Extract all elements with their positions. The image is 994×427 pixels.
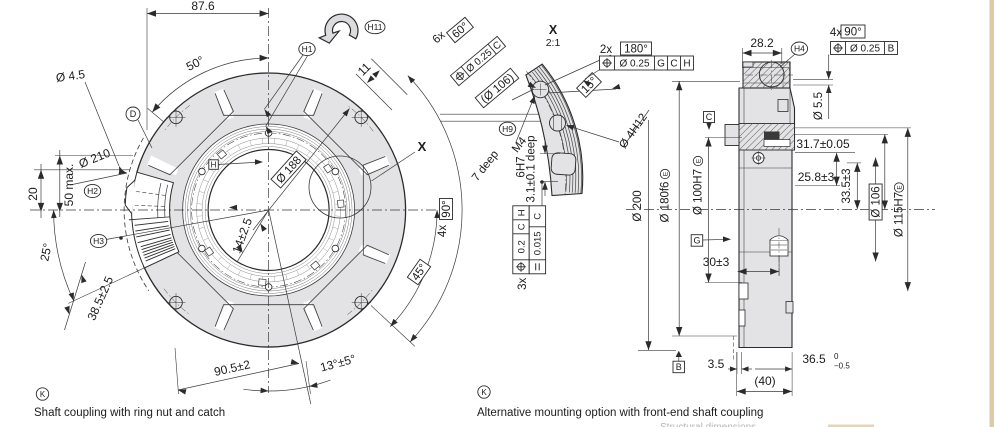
svg-text:Ø 100H7: Ø 100H7 bbox=[693, 169, 705, 215]
svg-text:20: 20 bbox=[26, 187, 40, 201]
svg-text:2:1: 2:1 bbox=[546, 37, 561, 49]
svg-text:Structural dimensions: Structural dimensions bbox=[660, 422, 756, 427]
svg-text:(40): (40) bbox=[754, 374, 775, 388]
svg-text:C: C bbox=[533, 213, 544, 220]
svg-text:G: G bbox=[693, 236, 700, 246]
svg-text:87.6: 87.6 bbox=[191, 0, 215, 13]
svg-text:G: G bbox=[657, 59, 665, 70]
svg-text:36.5: 36.5 bbox=[802, 352, 826, 366]
svg-text:Ø 180f6: Ø 180f6 bbox=[660, 182, 672, 223]
svg-text:0.015: 0.015 bbox=[533, 231, 544, 255]
svg-text:H: H bbox=[516, 209, 527, 216]
svg-text:33.5±3: 33.5±3 bbox=[841, 168, 853, 203]
svg-text:Ø 115H7: Ø 115H7 bbox=[894, 192, 906, 237]
svg-text:31.7±0.05: 31.7±0.05 bbox=[796, 137, 850, 151]
svg-text:2x: 2x bbox=[600, 44, 612, 56]
svg-text:H4: H4 bbox=[794, 44, 805, 54]
svg-text:4x: 4x bbox=[830, 27, 842, 39]
svg-text:−0.5: −0.5 bbox=[834, 362, 850, 371]
svg-text:E: E bbox=[696, 158, 703, 163]
svg-text:K: K bbox=[481, 388, 487, 397]
svg-text:Shaft coupling with ring nut a: Shaft coupling with ring nut and catch bbox=[34, 407, 225, 419]
svg-text:3.1±0.1 deep: 3.1±0.1 deep bbox=[526, 135, 538, 202]
svg-text:4x: 4x bbox=[437, 225, 449, 237]
svg-text:B: B bbox=[888, 44, 895, 55]
svg-text:H3: H3 bbox=[93, 236, 104, 246]
svg-text:H2: H2 bbox=[87, 186, 98, 196]
svg-text:H: H bbox=[683, 59, 690, 70]
svg-text:Alternative mounting option wi: Alternative mounting option with front-e… bbox=[477, 407, 763, 419]
svg-text:H: H bbox=[211, 160, 217, 169]
svg-text:E: E bbox=[663, 171, 670, 176]
svg-text:25.8±3: 25.8±3 bbox=[798, 170, 835, 184]
svg-text:X: X bbox=[418, 139, 427, 154]
svg-text:C: C bbox=[670, 59, 677, 70]
svg-text:Ø 106: Ø 106 bbox=[871, 186, 883, 217]
svg-text:H11: H11 bbox=[368, 22, 383, 32]
svg-text:Ø 200: Ø 200 bbox=[632, 190, 644, 221]
svg-text:B: B bbox=[676, 362, 682, 372]
svg-text:C: C bbox=[516, 223, 527, 230]
svg-text:0.2: 0.2 bbox=[516, 240, 527, 253]
svg-text:28.2: 28.2 bbox=[750, 36, 774, 50]
svg-text:90°: 90° bbox=[844, 27, 861, 39]
svg-text:X: X bbox=[549, 23, 558, 37]
svg-text:C: C bbox=[706, 112, 713, 122]
svg-text:Ø 5.5: Ø 5.5 bbox=[813, 92, 825, 120]
svg-text:30±3: 30±3 bbox=[703, 255, 730, 269]
svg-text:3.5: 3.5 bbox=[708, 357, 725, 371]
svg-text:Ø 0.25: Ø 0.25 bbox=[850, 44, 880, 55]
svg-text:90°: 90° bbox=[441, 200, 453, 217]
svg-text:Ø 0.25: Ø 0.25 bbox=[619, 59, 649, 70]
svg-text:H9: H9 bbox=[502, 124, 513, 134]
svg-text:3x: 3x bbox=[517, 277, 529, 289]
svg-text:D: D bbox=[130, 109, 137, 119]
svg-text:180°: 180° bbox=[624, 44, 648, 56]
svg-text:H1: H1 bbox=[302, 44, 313, 54]
svg-text:E: E bbox=[897, 185, 904, 190]
svg-text:0: 0 bbox=[834, 352, 839, 361]
svg-text:K: K bbox=[40, 390, 46, 399]
